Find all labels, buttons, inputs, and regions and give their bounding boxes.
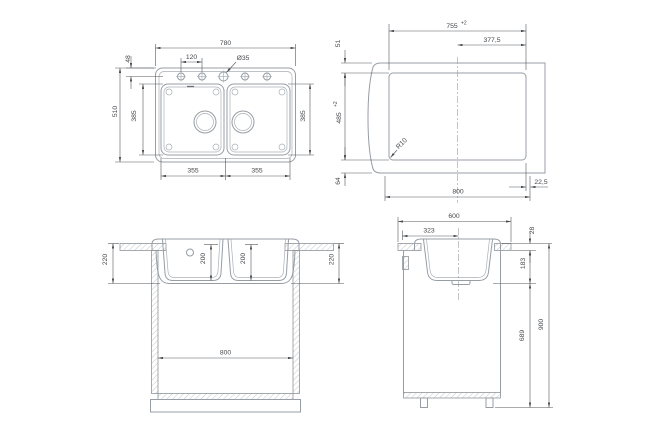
cabinet-leg-back xyxy=(486,398,493,408)
cutout-dimensions: 755 +2 377,5 51 485 +2 64 R10 xyxy=(333,21,548,202)
plan-view: 780 120 Ø35 48 510 385 385 xyxy=(112,40,314,180)
dim-600: 600 xyxy=(448,213,460,220)
cabinet-wall-right xyxy=(293,251,300,394)
bowl-side-section xyxy=(424,240,493,281)
tap-holes xyxy=(176,71,272,83)
counter-outline xyxy=(368,63,545,173)
sink-shell-section xyxy=(156,251,295,284)
dim-900: 900 xyxy=(538,319,545,331)
counter-section-back xyxy=(495,244,512,251)
dim-22-5: 22,5 xyxy=(534,179,547,186)
dim-355-left: 355 xyxy=(187,168,199,175)
cabinet-leg-front xyxy=(421,398,428,408)
dim-800-cabinet: 800 xyxy=(220,350,232,357)
cabinet-plinth xyxy=(151,400,301,413)
counter-section-left xyxy=(120,244,166,251)
dim-64: 64 xyxy=(335,177,342,185)
dim-220-left: 220 xyxy=(102,254,109,266)
dim-485-group: 485 +2 xyxy=(333,101,343,124)
dim-485-tol: +2 xyxy=(333,101,339,107)
dim-485: 485 xyxy=(336,112,343,124)
technical-drawing-sink: 780 120 Ø35 48 510 385 385 xyxy=(0,0,666,444)
dim-200-right: 200 xyxy=(240,253,247,265)
dim-377-5: 377,5 xyxy=(483,37,500,44)
right-bowl-section xyxy=(228,240,289,281)
cutout-view: 755 +2 377,5 51 485 +2 64 R10 xyxy=(333,21,548,204)
drawing-sheet: 780 120 Ø35 48 510 385 385 xyxy=(0,0,666,444)
dim-r10: R10 xyxy=(395,137,409,151)
drain-right xyxy=(232,111,254,133)
dim-120: 120 xyxy=(186,54,198,61)
side-section-dimensions: 600 323 28 183 689 900 xyxy=(398,213,553,408)
r10-leader xyxy=(391,150,398,158)
dim-689: 689 xyxy=(519,330,526,342)
dim-780: 780 xyxy=(220,40,232,47)
sink-outline xyxy=(156,68,296,162)
drain-hole-section xyxy=(187,249,194,256)
cabinet-bottom-side xyxy=(404,393,501,399)
dim-385-right: 385 xyxy=(300,110,307,122)
left-bowl-section xyxy=(163,240,224,281)
dim-28: 28 xyxy=(529,227,536,235)
side-section-view: 600 323 28 183 689 900 xyxy=(398,213,553,408)
counter-section-right xyxy=(285,244,334,251)
dim-48: 48 xyxy=(125,55,132,63)
sink-rim-inner-line xyxy=(159,72,292,159)
drain-left xyxy=(194,111,216,133)
dim-323: 323 xyxy=(423,228,435,235)
front-section-view: 220 200 200 220 800 xyxy=(102,239,344,412)
dia35-leader xyxy=(227,62,237,73)
counter-section-front xyxy=(398,244,421,251)
dim-200-left: 200 xyxy=(200,253,207,265)
dim-51: 51 xyxy=(335,40,342,48)
left-bowl xyxy=(161,84,224,155)
dim-755: 755 xyxy=(446,23,458,30)
front-section-dimensions: 220 200 200 220 800 xyxy=(102,244,344,359)
dim-510: 510 xyxy=(112,106,119,118)
dim-755-tol: +2 xyxy=(461,21,467,27)
cabinet-wall-left xyxy=(152,251,159,394)
dim-355-right: 355 xyxy=(251,168,263,175)
plan-dimensions: 780 120 Ø35 48 510 385 385 xyxy=(112,40,314,180)
sink-rim-section xyxy=(152,239,299,251)
dim-183: 183 xyxy=(520,258,527,270)
drain-boss xyxy=(452,281,470,285)
dim-220-right: 220 xyxy=(329,254,336,266)
dim-dia35: Ø35 xyxy=(237,55,250,62)
cabinet-bottom xyxy=(158,394,293,400)
dim-800-counter: 800 xyxy=(452,189,464,196)
dim-385-left: 385 xyxy=(131,110,138,122)
right-bowl xyxy=(227,84,290,155)
